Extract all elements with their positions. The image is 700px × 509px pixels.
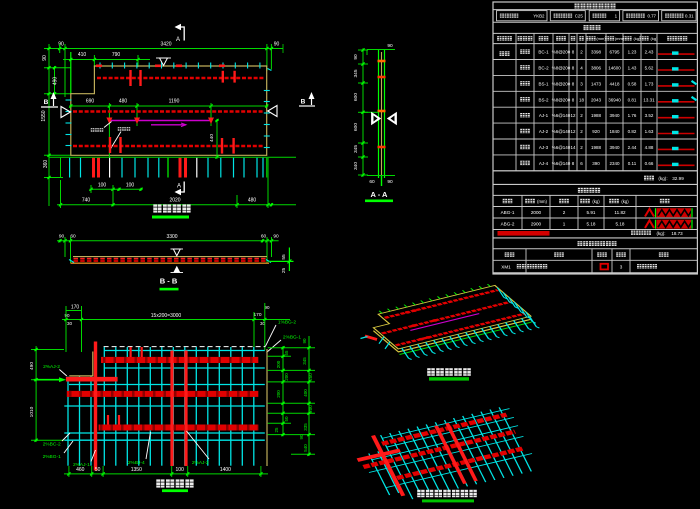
svg-text:AJ-2: AJ-2 — [539, 129, 549, 134]
svg-text:BS-2: BS-2 — [538, 97, 549, 102]
svg-text:390: 390 — [592, 161, 600, 166]
svg-text:2%BG-1: 2%BG-1 — [283, 335, 301, 341]
svg-text:60: 60 — [70, 233, 76, 239]
svg-text:(kg):: (kg): — [658, 176, 667, 181]
svg-text:4418: 4418 — [609, 81, 620, 86]
svg-text:5.62: 5.62 — [645, 66, 654, 71]
svg-text:BC-1: BC-1 — [538, 50, 549, 55]
svg-text:170: 170 — [71, 305, 80, 311]
svg-text:90: 90 — [353, 54, 359, 60]
svg-text:50: 50 — [95, 467, 101, 473]
svg-text:340: 340 — [353, 162, 359, 170]
svg-text:2340: 2340 — [609, 161, 620, 166]
svg-text:1550: 1550 — [41, 110, 47, 121]
svg-text:0.66: 0.66 — [645, 161, 654, 166]
svg-text:%8@200: %8@200 — [552, 66, 571, 71]
svg-text:90: 90 — [274, 42, 280, 48]
svg-text:1.23: 1.23 — [628, 50, 637, 55]
svg-text:%6@140: %6@140 — [552, 129, 571, 134]
svg-text:C25: C25 — [575, 13, 584, 18]
svg-text:2: 2 — [563, 210, 566, 215]
svg-text:14600: 14600 — [608, 66, 621, 71]
svg-text:0.82: 0.82 — [628, 129, 637, 134]
svg-text:13.31: 13.31 — [643, 97, 655, 102]
svg-text:90: 90 — [302, 338, 307, 344]
svg-text:(kg): (kg) — [592, 199, 600, 204]
svg-text:600: 600 — [353, 123, 359, 131]
svg-text:1.43: 1.43 — [628, 66, 637, 71]
svg-text:%6@140: %6@140 — [552, 145, 571, 150]
svg-text:AJ-3: AJ-3 — [539, 145, 549, 150]
svg-text:200: 200 — [276, 390, 281, 398]
svg-text:2020: 2020 — [169, 198, 180, 204]
svg-text:2000: 2000 — [531, 210, 542, 215]
svg-text:B: B — [301, 99, 306, 106]
svg-text:AJ-1: AJ-1 — [539, 113, 549, 118]
svg-text:740: 740 — [82, 198, 91, 204]
svg-text:55: 55 — [281, 254, 287, 260]
svg-text:100: 100 — [126, 183, 135, 189]
svg-text:A: A — [176, 37, 180, 43]
svg-text:AJ-4: AJ-4 — [539, 161, 549, 166]
svg-text:100: 100 — [98, 183, 107, 189]
svg-text:1190: 1190 — [169, 99, 180, 105]
svg-text:0.77: 0.77 — [647, 13, 656, 18]
svg-text:1988: 1988 — [591, 113, 602, 118]
svg-text:460: 460 — [76, 467, 85, 473]
svg-text:5.18: 5.18 — [616, 222, 625, 227]
svg-text:335: 335 — [303, 423, 308, 431]
svg-text:600: 600 — [353, 93, 359, 101]
svg-text:200: 200 — [284, 373, 289, 381]
svg-text:YKB2: YKB2 — [533, 13, 545, 18]
svg-text:540: 540 — [303, 444, 308, 452]
svg-text:B: B — [44, 99, 49, 106]
svg-text:5.18: 5.18 — [587, 222, 596, 227]
svg-text:%8@200: %8@200 — [552, 97, 571, 102]
svg-text:1.76: 1.76 — [628, 113, 637, 118]
svg-text:4.88: 4.88 — [645, 145, 654, 150]
svg-text:ABG-2: ABG-2 — [501, 222, 515, 227]
svg-text:(mm): (mm) — [537, 199, 547, 204]
svg-text:200: 200 — [308, 405, 313, 413]
svg-text:3300: 3300 — [166, 234, 177, 240]
svg-text:36940: 36940 — [608, 97, 621, 102]
svg-text:0.31: 0.31 — [685, 13, 694, 18]
svg-text:(kg): (kg) — [621, 199, 629, 204]
svg-text:90: 90 — [58, 42, 64, 48]
svg-text:3806: 3806 — [591, 66, 602, 71]
svg-text:480: 480 — [248, 198, 257, 204]
svg-text:2%AJ-2: 2%AJ-2 — [192, 460, 209, 466]
svg-text:790: 790 — [112, 52, 121, 58]
svg-text:B - B: B - B — [160, 277, 178, 286]
svg-text:50: 50 — [284, 416, 289, 422]
svg-text:1.73: 1.73 — [645, 81, 654, 86]
svg-text:%6@140: %6@140 — [552, 161, 571, 166]
svg-text:250: 250 — [308, 373, 313, 381]
svg-text:60: 60 — [369, 179, 375, 185]
svg-text:345: 345 — [302, 357, 307, 365]
svg-text:920: 920 — [592, 129, 600, 134]
svg-text:345: 345 — [353, 69, 359, 77]
svg-text:(kg):: (kg): — [657, 231, 666, 236]
svg-text:3940: 3940 — [609, 113, 620, 118]
svg-text:32.99: 32.99 — [672, 176, 684, 181]
svg-text:440: 440 — [209, 134, 215, 142]
svg-text:14: 14 — [570, 145, 576, 150]
svg-text:18: 18 — [579, 97, 585, 102]
svg-text:490: 490 — [53, 77, 59, 86]
svg-text:200: 200 — [276, 360, 281, 368]
svg-text:1.63: 1.63 — [645, 129, 654, 134]
svg-text:2%BG-1: 2%BG-1 — [43, 454, 61, 460]
svg-text:A - A: A - A — [371, 190, 389, 199]
svg-text:90: 90 — [59, 233, 65, 239]
svg-text:(mm): (mm) — [596, 36, 606, 41]
svg-text:1010: 1010 — [29, 406, 35, 417]
svg-text:12: 12 — [570, 113, 576, 118]
svg-text:90: 90 — [42, 55, 48, 61]
svg-text:2.44: 2.44 — [628, 145, 637, 150]
svg-text:345: 345 — [353, 145, 359, 153]
svg-text:1840: 1840 — [609, 129, 620, 134]
svg-text:15x200=3000: 15x200=3000 — [151, 313, 182, 319]
svg-text:90: 90 — [299, 434, 304, 440]
svg-text:2%AJ-2: 2%AJ-2 — [43, 364, 60, 370]
svg-text:1988: 1988 — [591, 145, 602, 150]
svg-text:11.82: 11.82 — [614, 210, 626, 215]
svg-text:3420: 3420 — [160, 42, 171, 48]
svg-text:490: 490 — [29, 362, 35, 370]
svg-text:3: 3 — [620, 264, 623, 269]
svg-text:1: 1 — [563, 222, 566, 227]
svg-text:100: 100 — [176, 467, 185, 473]
svg-text:0.58: 0.58 — [628, 81, 637, 86]
svg-text:55: 55 — [284, 350, 289, 356]
svg-text:5.91: 5.91 — [587, 210, 596, 215]
svg-text:480: 480 — [119, 99, 128, 105]
svg-text:90: 90 — [387, 43, 393, 49]
svg-text:%8@200: %8@200 — [552, 50, 571, 55]
svg-text:25: 25 — [281, 268, 287, 274]
svg-text:%8@200: %8@200 — [552, 81, 571, 86]
svg-text:BS-1: BS-1 — [538, 81, 549, 86]
svg-text:690: 690 — [86, 99, 95, 105]
svg-text:2%BC-2: 2%BC-2 — [43, 442, 61, 448]
svg-text:2%BJ-4: 2%BJ-4 — [128, 460, 145, 466]
svg-text:1350: 1350 — [131, 467, 142, 473]
svg-text:A: A — [177, 184, 181, 190]
svg-text:6795: 6795 — [609, 50, 620, 55]
svg-text:90: 90 — [273, 233, 279, 239]
svg-text:18.73: 18.73 — [671, 231, 683, 236]
svg-text:60: 60 — [261, 233, 267, 239]
svg-text:%6@140: %6@140 — [552, 113, 571, 118]
svg-text:BC-2: BC-2 — [538, 66, 549, 71]
svg-text:410: 410 — [78, 52, 87, 58]
svg-text:1400: 1400 — [220, 467, 231, 473]
svg-text:90: 90 — [64, 313, 70, 318]
svg-text:400: 400 — [303, 389, 308, 397]
svg-text:90: 90 — [387, 179, 393, 185]
svg-text:2.43: 2.43 — [645, 50, 654, 55]
svg-text:0.11: 0.11 — [628, 161, 637, 166]
svg-text:0.81: 0.81 — [628, 97, 637, 102]
svg-text:XM1: XM1 — [501, 264, 511, 269]
svg-text:25: 25 — [274, 427, 279, 433]
svg-text:170: 170 — [253, 312, 261, 318]
svg-text:12: 12 — [570, 129, 576, 134]
svg-text:1473: 1473 — [591, 81, 602, 86]
svg-text:90: 90 — [264, 305, 270, 310]
svg-text:360: 360 — [43, 160, 49, 169]
svg-text:3940: 3940 — [609, 145, 620, 150]
svg-text:1%BG-2: 1%BG-2 — [278, 320, 296, 326]
svg-text:2043: 2043 — [591, 97, 602, 102]
svg-text:2900: 2900 — [531, 222, 542, 227]
svg-text:ABG-1: ABG-1 — [501, 210, 515, 215]
svg-text:3.52: 3.52 — [645, 113, 654, 118]
svg-text:30: 30 — [67, 321, 73, 326]
svg-text:3398: 3398 — [591, 50, 602, 55]
